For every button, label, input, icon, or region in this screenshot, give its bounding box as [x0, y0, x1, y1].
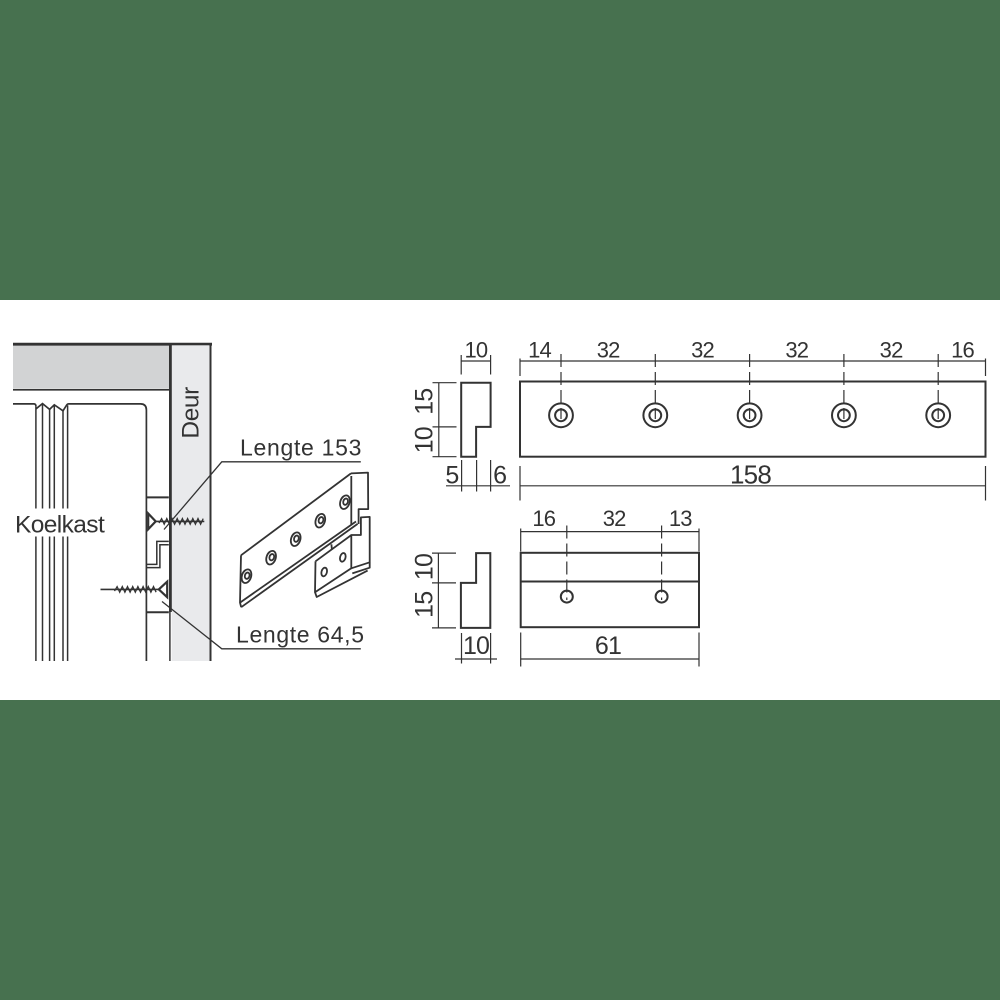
- svg-text:16: 16: [951, 337, 974, 362]
- svg-text:61: 61: [595, 632, 621, 660]
- svg-text:32: 32: [691, 337, 714, 362]
- svg-text:13: 13: [669, 506, 692, 531]
- svg-text:32: 32: [880, 337, 903, 362]
- svg-text:Lengte 64,5: Lengte 64,5: [236, 621, 365, 647]
- svg-text:10: 10: [464, 337, 487, 362]
- svg-text:32: 32: [597, 337, 620, 362]
- svg-text:15: 15: [411, 592, 439, 618]
- svg-text:32: 32: [603, 506, 626, 531]
- svg-text:14: 14: [528, 337, 551, 362]
- svg-text:10: 10: [411, 427, 439, 453]
- svg-text:6: 6: [493, 461, 506, 489]
- svg-text:Lengte 153: Lengte 153: [240, 434, 362, 460]
- svg-text:16: 16: [532, 506, 555, 531]
- svg-text:15: 15: [411, 389, 439, 415]
- svg-text:Deur: Deur: [177, 387, 204, 439]
- svg-text:10: 10: [411, 554, 439, 580]
- svg-text:5: 5: [445, 461, 458, 489]
- svg-text:158: 158: [730, 459, 771, 489]
- svg-text:Koelkast: Koelkast: [15, 511, 105, 538]
- svg-text:32: 32: [785, 337, 808, 362]
- svg-text:10: 10: [463, 632, 489, 660]
